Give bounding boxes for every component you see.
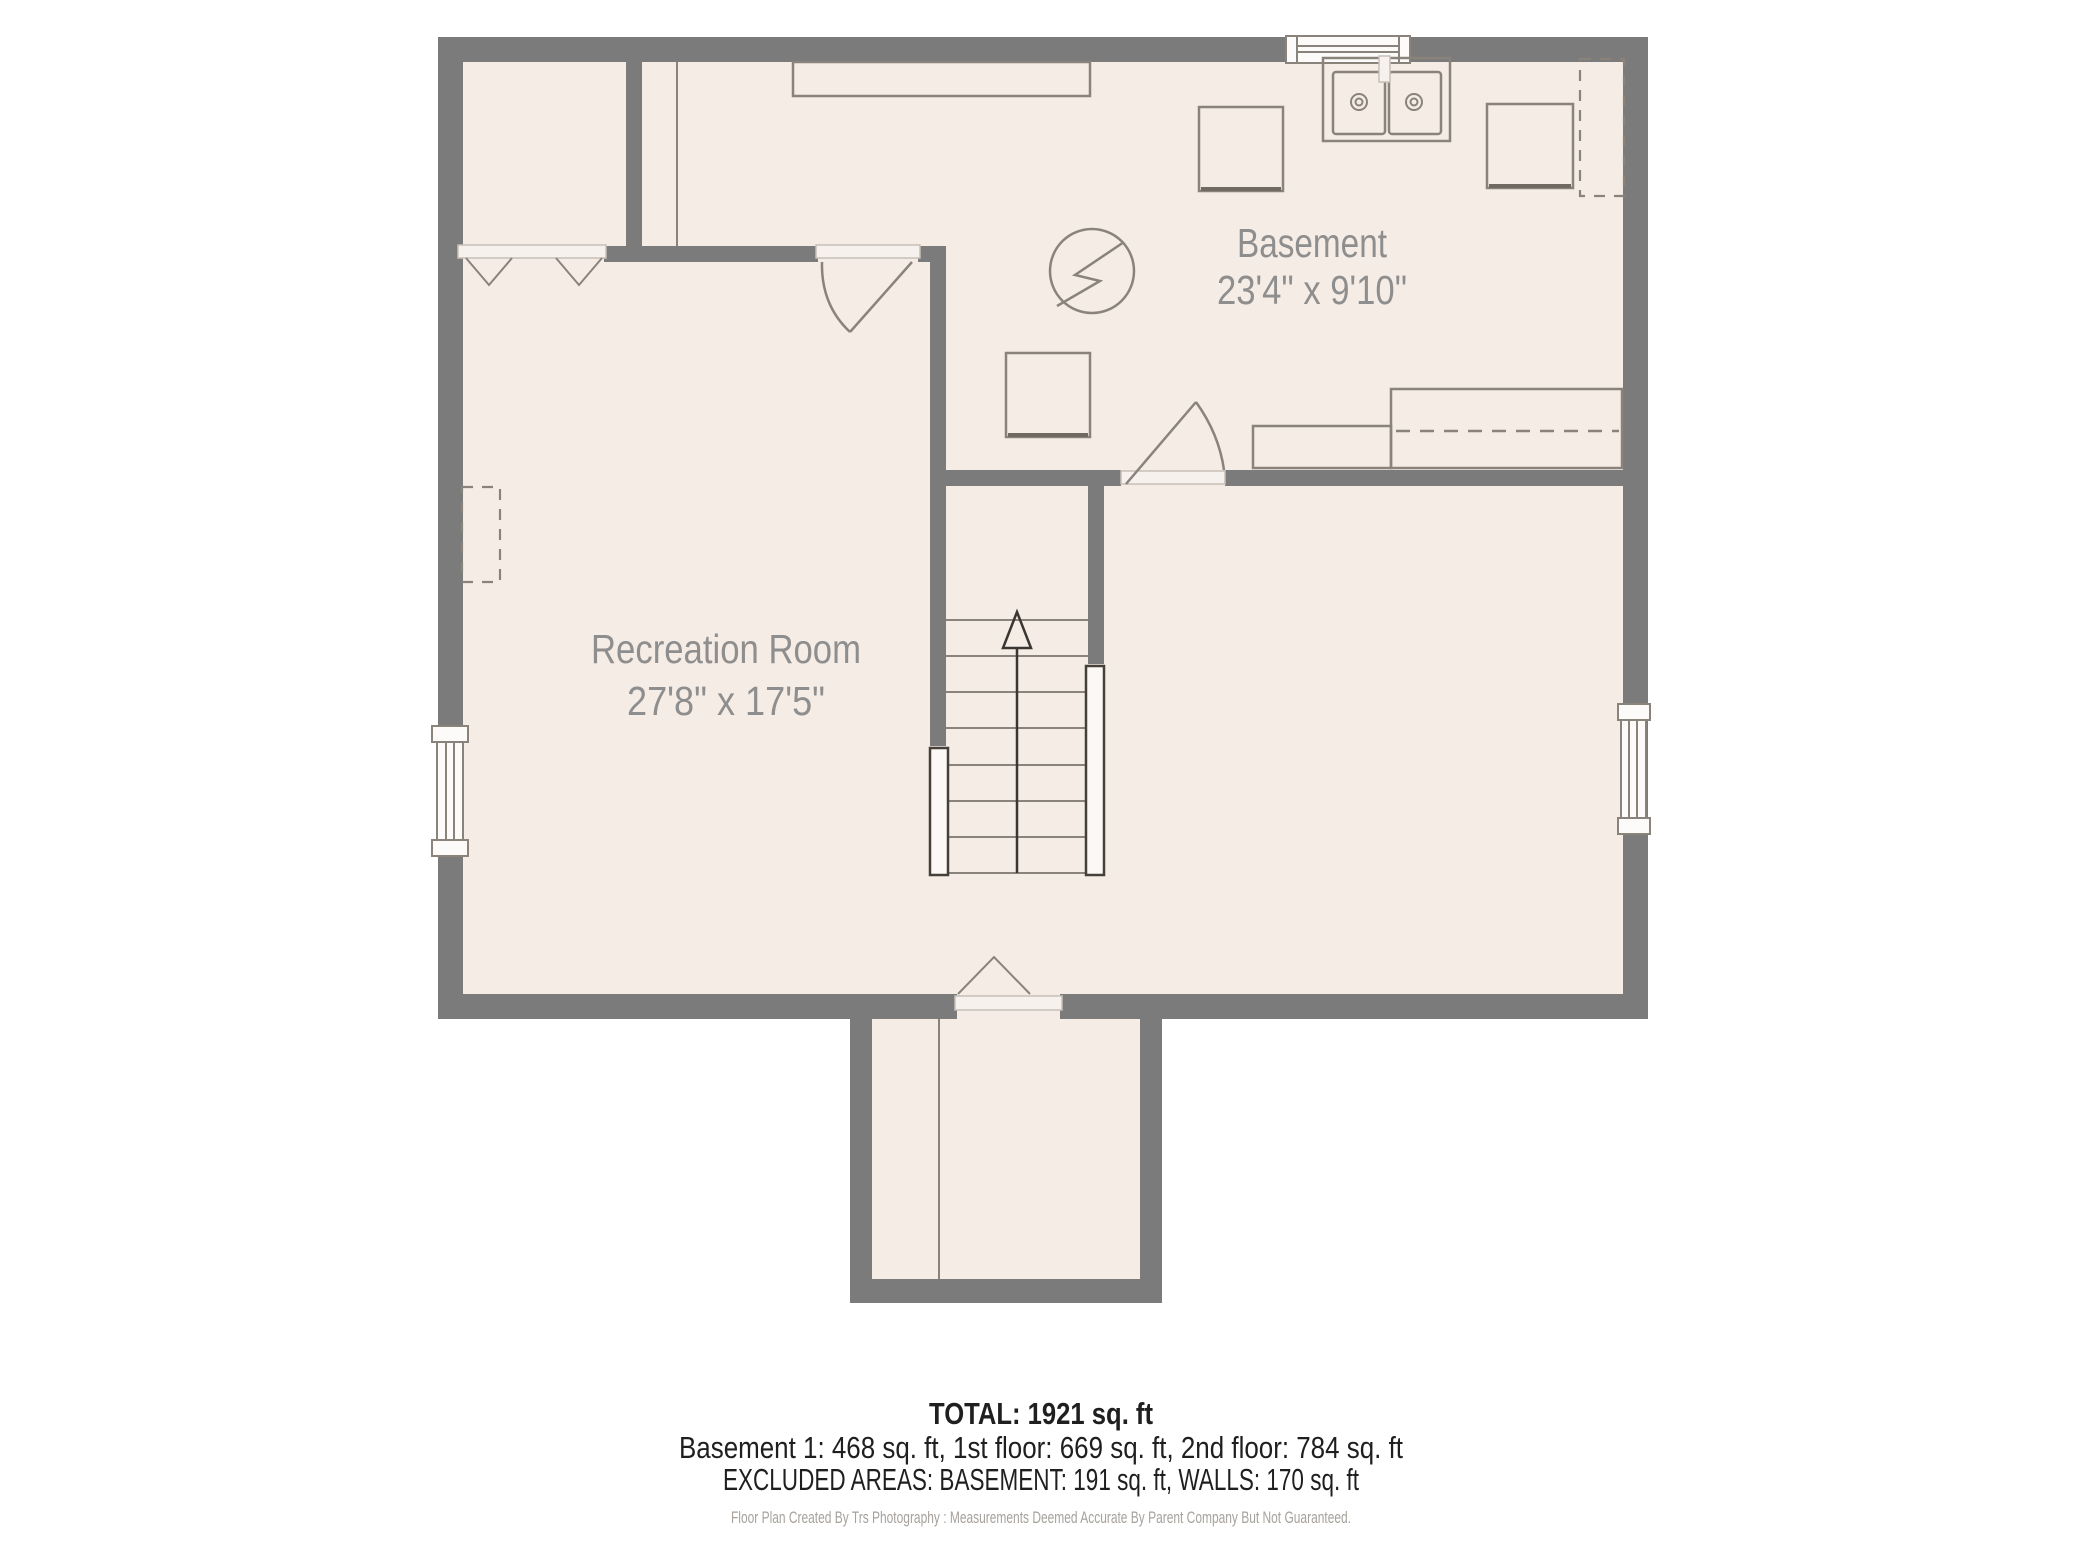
vestibule-wall-bottom — [850, 1279, 1162, 1303]
basement-room-label: Basement — [1237, 220, 1387, 266]
vestibule-wall-left — [850, 1019, 872, 1301]
partition-wall-c2 — [1225, 470, 1623, 486]
partition-wall-a2 — [604, 246, 818, 262]
right-wall-window — [1618, 704, 1650, 834]
stairwell-wall-left — [930, 246, 946, 746]
excluded-area-text: EXCLUDED AREAS: BASEMENT: 191 sq. ft, WA… — [723, 1462, 1359, 1497]
entry-vestibule-floor — [850, 994, 1162, 1303]
outer-wall-bottom-right — [1060, 994, 1648, 1019]
closet-opening-sill — [458, 245, 606, 258]
stair-rail-right — [1086, 666, 1104, 875]
basement-room-dimensions: 23'4" x 9'10" — [1217, 267, 1407, 313]
basement-door-sill — [816, 245, 920, 258]
floors-area-text: Basement 1: 468 sq. ft, 1st floor: 669 s… — [679, 1430, 1403, 1465]
total-area-text: TOTAL: 1921 sq. ft — [929, 1396, 1153, 1431]
recreation-room-label: Recreation Room — [591, 626, 861, 672]
outer-wall-bottom-left — [438, 994, 957, 1019]
entry-door-sill — [955, 996, 1062, 1010]
partition-wall-c1 — [946, 470, 1121, 486]
faucet-icon — [1379, 56, 1390, 82]
storage-room-wall — [626, 37, 642, 262]
stairwell-wall-right — [1088, 486, 1104, 664]
summary-block: TOTAL: 1921 sq. ft Basement 1: 468 sq. f… — [679, 1396, 1403, 1527]
attribution-text: Floor Plan Created By Trs Photography : … — [731, 1508, 1351, 1527]
recreation-room-dimensions: 27'8" x 17'5" — [627, 678, 825, 724]
stair-rail-left — [930, 748, 948, 875]
left-wall-window — [432, 726, 468, 856]
floor-plan-page: Basement 23'4" x 9'10" Recreation Room 2… — [0, 0, 2080, 1560]
outer-wall-left — [438, 37, 463, 1019]
floor-plan-drawing: Basement 23'4" x 9'10" Recreation Room 2… — [0, 0, 2080, 1560]
outer-wall-right — [1623, 37, 1648, 1019]
outer-wall-top — [438, 37, 1648, 62]
partition-wall-a1 — [438, 246, 460, 262]
vestibule-wall-right — [1140, 1019, 1162, 1301]
main-floor-area — [438, 37, 1648, 1019]
